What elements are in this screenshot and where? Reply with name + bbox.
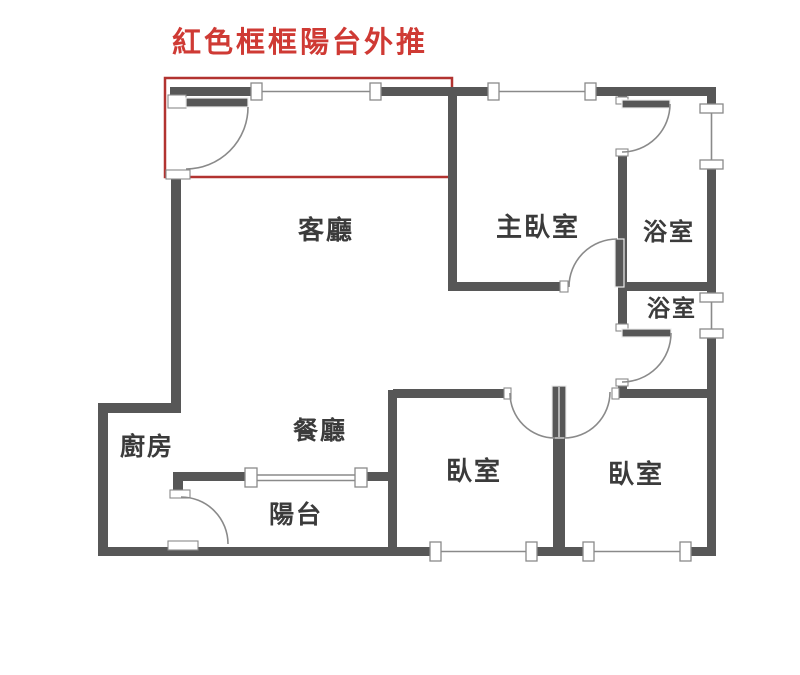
wall-right-3: [707, 338, 716, 556]
window-marker-icon: [370, 83, 381, 100]
wall-bedroom1-left: [388, 390, 397, 547]
jamb-entry-door-hinge: [168, 95, 186, 108]
window-marker-icon: [700, 329, 723, 338]
master-door-panel: [615, 239, 624, 287]
wall-master-bottom: [448, 282, 562, 291]
entry-door-panel: [186, 98, 248, 107]
bedroom1-door-swing: [510, 393, 555, 438]
wall-left-outer: [98, 403, 108, 556]
window-marker-icon: [680, 542, 691, 561]
wall-top-2: [381, 87, 489, 96]
window-marker-icon: [700, 160, 723, 169]
wall-bottom-1: [98, 547, 431, 556]
jamb-balcony-door-sill: [168, 541, 198, 550]
window-marker-icon: [488, 83, 499, 100]
window-marker-icon: [355, 468, 367, 487]
room-label-balcony: 陽台: [269, 500, 323, 529]
window-marker-icon: [585, 83, 596, 100]
room-label-bedroom1: 臥室: [446, 456, 502, 487]
bath1-door-panel: [622, 100, 670, 108]
room-label-bath2: 浴室: [647, 295, 697, 322]
wall-right-1: [707, 87, 716, 106]
window-marker-icon: [251, 83, 262, 100]
room-label-dining: 餐廳: [293, 416, 347, 445]
wall-bedroom2-top: [615, 389, 716, 398]
wall-kitchen-top: [98, 403, 181, 413]
master-door-swing: [569, 239, 617, 287]
jamb-master-door: [560, 281, 568, 292]
room-label-bedroom2: 臥室: [608, 459, 664, 490]
room-label-bath1: 浴室: [643, 218, 695, 246]
room-label-kitchen: 廚房: [120, 432, 174, 461]
wall-bedroom-divider: [553, 438, 565, 547]
wall-balcony-1: [173, 472, 245, 481]
bath1-door-swing: [622, 104, 670, 152]
annotation-title: 紅色框框陽台外推: [172, 25, 428, 59]
floor-plan-canvas: 紅色框框陽台外推 客廳 主臥室 浴室 浴室 廚房 餐廳 陽台 臥室 臥室: [0, 0, 800, 675]
wall-bottom-2: [537, 547, 584, 556]
window-marker-icon: [526, 542, 537, 561]
jamb-bedroom2-door: [612, 388, 619, 399]
window-marker-icon: [245, 468, 257, 487]
wall-bath1-bottom: [627, 282, 716, 291]
wall-master-left: [448, 96, 457, 291]
wall-bedroom1-top: [393, 389, 506, 398]
door-panels: [186, 98, 671, 438]
floor-plan-page: 紅色框框陽台外推 客廳 主臥室 浴室 浴室 廚房 餐廳 陽台 臥室 臥室: [0, 0, 800, 675]
wall-bottom-3: [691, 547, 716, 556]
bath2-door-swing: [622, 333, 671, 382]
wall-top-3: [596, 87, 716, 96]
window-marker-icon: [430, 542, 441, 561]
wall-right-2: [707, 168, 716, 294]
wall-living-left: [171, 177, 181, 411]
jamb-entry-door-strike: [166, 170, 190, 179]
room-label-living: 客廳: [298, 215, 354, 246]
window-marker-icon: [700, 104, 723, 113]
room-label-master: 主臥室: [496, 212, 580, 243]
balcony-door-swing: [181, 497, 228, 544]
bedroom2-door-swing: [564, 392, 610, 438]
window-marker-icon: [700, 293, 723, 302]
window-marker-icon: [583, 542, 594, 561]
entry-door-swing: [186, 107, 248, 169]
bath2-door-panel: [622, 329, 671, 337]
